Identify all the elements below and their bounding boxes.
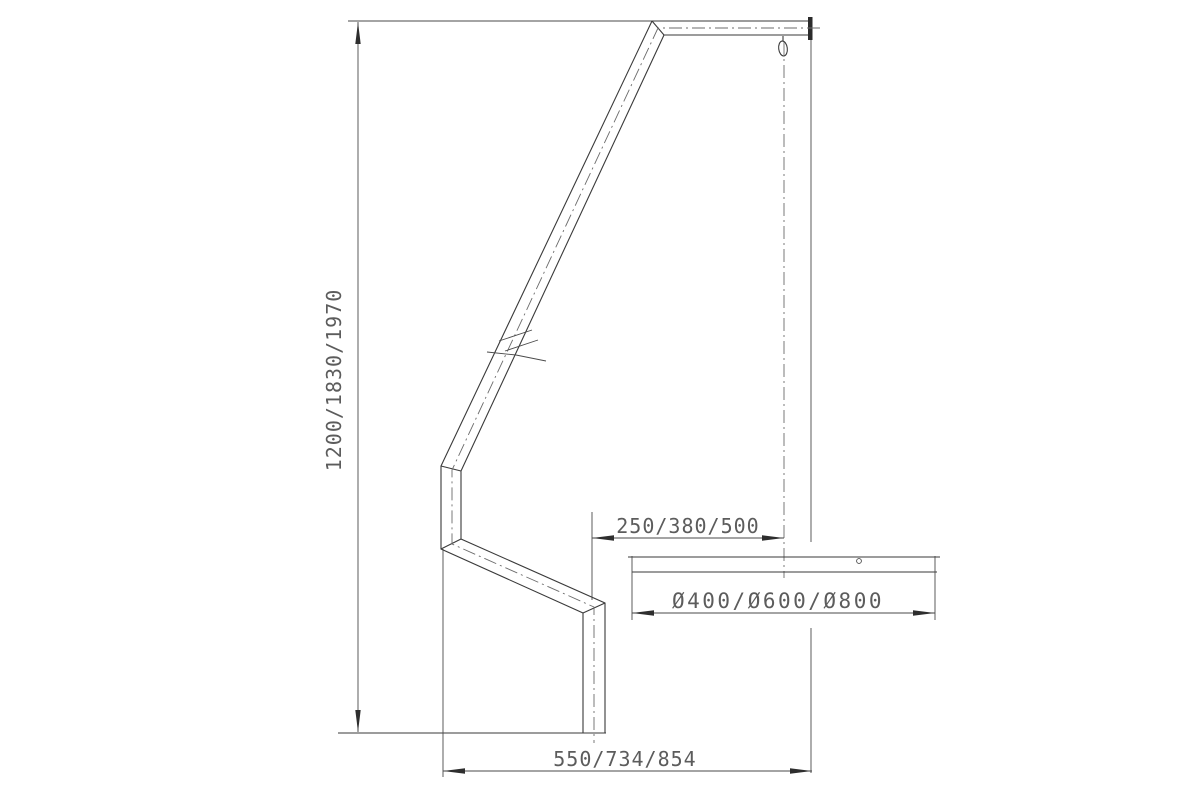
dim-base-diameter: Ø400/Ø600/Ø800 — [632, 589, 935, 616]
dim-height-label: 1200/1830/1970 — [322, 289, 346, 472]
dim-footprint: 550/734/854 — [443, 549, 812, 777]
pole-inner-contour — [461, 35, 664, 733]
dim-diameter-arrow-left — [632, 610, 654, 615]
dim-footprint-arrow-right — [790, 768, 812, 773]
dim-diameter-label: Ø400/Ø600/Ø800 — [672, 589, 884, 613]
technical-drawing: 1200/1830/1970 250/380/500 Ø400/Ø600/Ø80… — [0, 0, 1200, 800]
dim-height-arrow-up — [355, 22, 360, 44]
dim-footprint-label: 550/734/854 — [553, 747, 696, 771]
dim-height-arrow-down — [355, 710, 360, 732]
dim-offset-arrow-left — [592, 535, 614, 540]
miter-upper-elbow — [441, 466, 461, 471]
hook-eye — [778, 41, 788, 57]
miter-lower-elbow — [441, 539, 461, 549]
hook-detail — [778, 36, 788, 56]
dim-diameter-arrow-right — [913, 610, 935, 615]
plate-hole — [857, 559, 862, 564]
joint-cross-line — [487, 352, 546, 361]
pole-outline — [348, 17, 813, 733]
dim-footprint-arrow-left — [443, 768, 465, 773]
dim-offset-arrow-right — [762, 535, 784, 540]
dim-offset-label: 250/380/500 — [616, 514, 759, 538]
tube-joint-detail — [487, 330, 546, 361]
pole-centerline — [452, 28, 820, 743]
dim-height: 1200/1830/1970 — [322, 22, 361, 732]
drawing-canvas: 1200/1830/1970 250/380/500 Ø400/Ø600/Ø80… — [0, 0, 1200, 800]
arm-end-cap — [808, 17, 813, 40]
joint-seam-line-1 — [499, 330, 532, 341]
dim-offset: 250/380/500 — [592, 512, 784, 600]
